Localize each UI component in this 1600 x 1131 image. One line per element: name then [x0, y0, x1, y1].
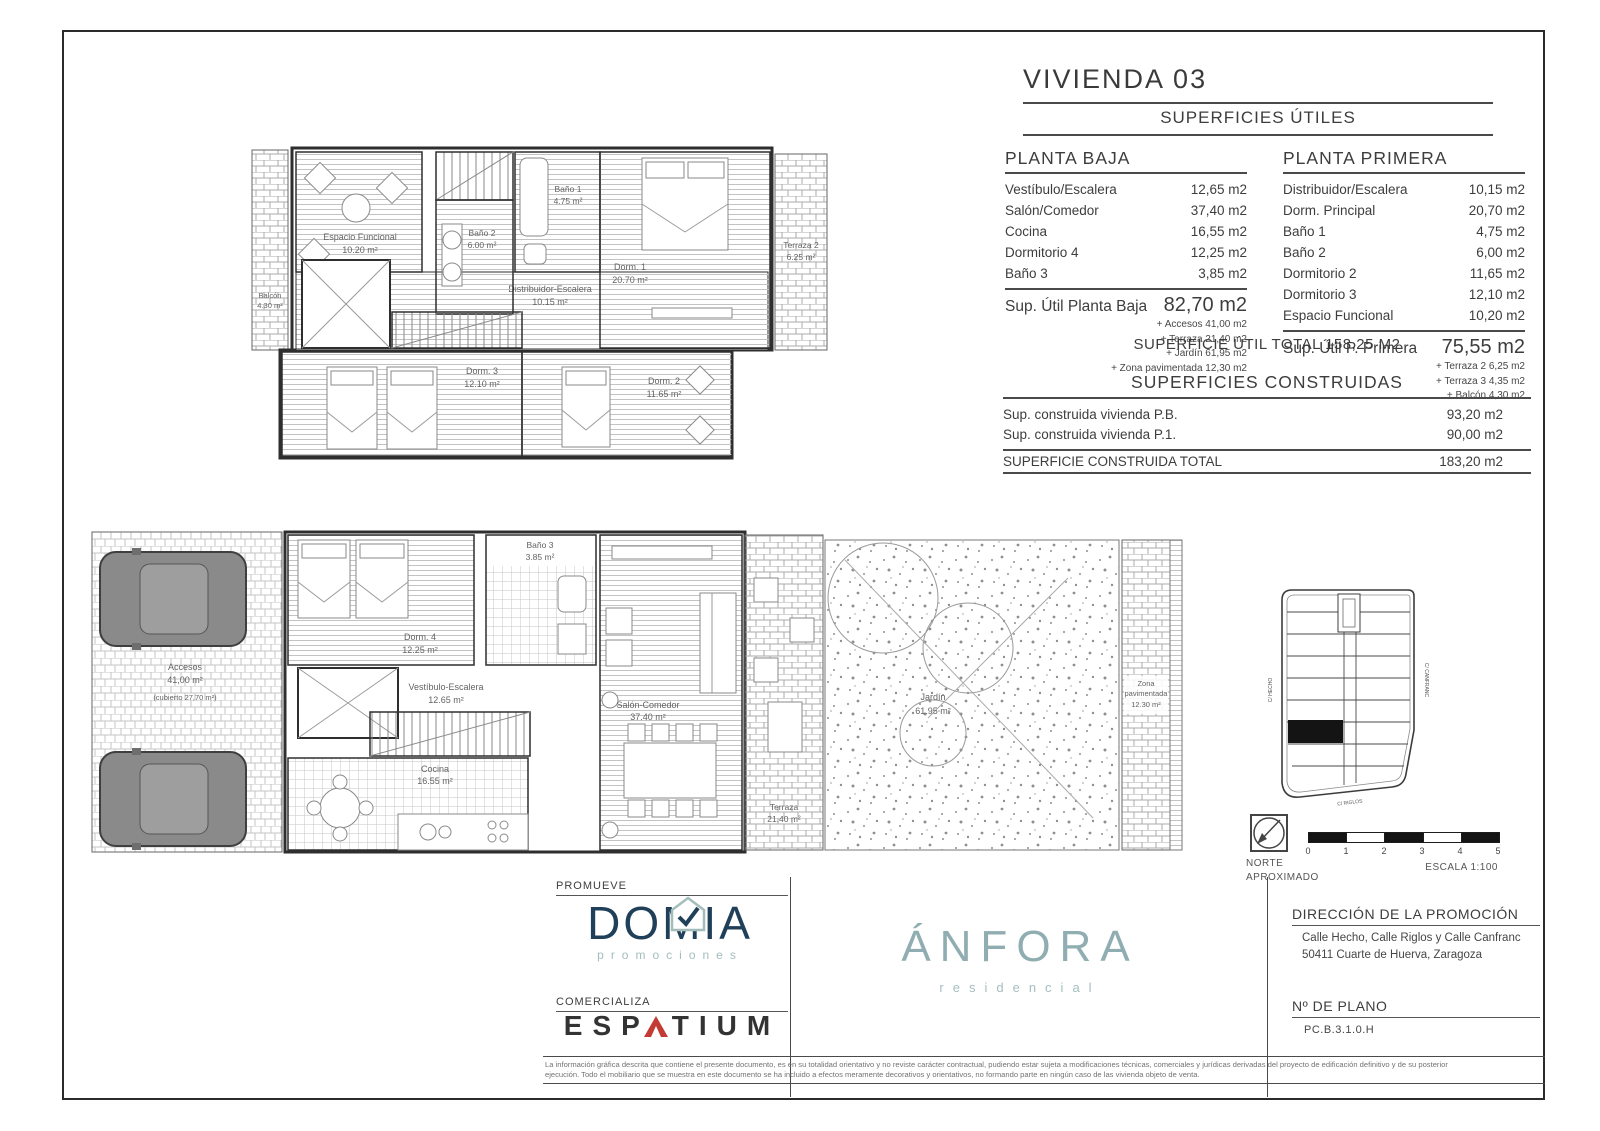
room-dorm4: Dorm. 4 12.25 m²	[288, 535, 474, 665]
room-espacio-funcional: Espacio Funcional 10.20 m²	[296, 152, 422, 272]
table-row: Vestíbulo/Escalera12,65 m2	[1005, 179, 1247, 200]
anfora-logo: ÁNFORA residencial	[860, 922, 1180, 995]
room-dorm3: Dorm. 3 12.10 m²	[282, 352, 522, 456]
total-value: 82,70 m2	[1164, 294, 1247, 317]
domia-logo: DOMIA promociones	[550, 898, 790, 962]
superficies-utiles-heading: SUPERFICIES ÚTILES	[1023, 108, 1493, 136]
room-area: 61.95 m²	[915, 706, 951, 716]
row-value: 4,75 m2	[1476, 221, 1525, 242]
table-row: Espacio Funcional10,20 m2	[1283, 305, 1525, 326]
espatium-text-right: TIUM	[672, 1012, 780, 1040]
table-row: Dormitorio 412,25 m2	[1005, 242, 1247, 263]
planta-primera-heading: PLANTA PRIMERA	[1283, 148, 1525, 174]
row-label: Sup. construida vivienda P.1.	[1003, 425, 1176, 445]
direccion-line1: Calle Hecho, Calle Riglos y Calle Canfra…	[1302, 932, 1542, 944]
room-bano3: Baño 3 3.85 m²	[486, 535, 596, 665]
row-value: 3,85 m2	[1198, 263, 1247, 284]
scale-tick: 4	[1455, 846, 1465, 856]
row-label: Dormitorio 3	[1283, 284, 1357, 305]
table-row: Baño 14,75 m2	[1283, 221, 1525, 242]
room-label: Baño 2	[469, 228, 496, 238]
row-label: Baño 2	[1283, 242, 1326, 263]
scale-tick: 2	[1379, 846, 1389, 856]
room-label: Baño 1	[555, 184, 582, 194]
direccion-line2: 50411 Cuarte de Huerva, Zaragoza	[1302, 949, 1542, 961]
balcony-area: Balcón 4.30 m²	[252, 150, 288, 350]
row-label: Sup. construida vivienda P.B.	[1003, 405, 1178, 425]
extra-area-line: + Accesos 41,00 m2	[1005, 318, 1247, 332]
scale-tick: 1	[1341, 846, 1351, 856]
table-row: Distribuidor/Escalera10,15 m2	[1283, 179, 1525, 200]
plano-heading: Nº DE PLANO	[1292, 998, 1540, 1018]
room-label: Baño 3	[527, 540, 554, 550]
void-skylight	[302, 260, 390, 348]
planta-baja-drawing: Accesos 41,00 m² (cubierto 27,70 m²) Dor…	[88, 518, 1188, 866]
car-icon	[100, 748, 246, 850]
anfora-subtitle: residencial	[860, 980, 1180, 995]
total-label: SUPERFICIE CONSTRUIDA TOTAL	[1003, 454, 1222, 469]
room-label: Dorm. 3	[466, 366, 498, 376]
driveway-area: Accesos 41,00 m² (cubierto 27,70 m²)	[92, 532, 282, 852]
scale-segment	[1385, 833, 1422, 842]
scale-label: ESCALA 1:100	[1398, 862, 1498, 873]
room-label: Terraza	[770, 802, 799, 812]
street-label: C/ CANFRANC	[1423, 663, 1429, 698]
table-row: Sup. construida vivienda P.B.93,20 m2	[1003, 405, 1531, 425]
room-area: 4.30 m²	[257, 301, 283, 310]
room-label: Dorm. 4	[404, 632, 436, 642]
scale-segment	[1309, 833, 1346, 842]
room-salon: Salón-Comedor 37.40 m²	[600, 535, 742, 850]
disclaimer-line2: ejecución. Todo el mobiliario que se mue…	[545, 1070, 1543, 1080]
room-area: 10.20 m²	[342, 245, 378, 255]
jardin-area: Jardín 61.95 m²	[825, 540, 1119, 850]
row-value: 10,20 m2	[1469, 305, 1525, 326]
row-value: 6,00 m2	[1476, 242, 1525, 263]
room-area: 4.75 m²	[554, 196, 583, 206]
room-bano2: Baño 2 6.00 m²	[436, 200, 513, 314]
room-area: 6.25 m²	[787, 252, 816, 262]
superficies-construidas-table: SUPERFICIES CONSTRUIDAS Sup. construida …	[1003, 372, 1531, 474]
boundary-wall	[1170, 540, 1182, 850]
row-value: 10,15 m2	[1469, 179, 1525, 200]
room-area: 12.10 m²	[464, 379, 500, 389]
planta-baja-total-row: Sup. Útil Planta Baja82,70 m2	[1005, 288, 1247, 317]
direccion-heading: DIRECCIÓN DE LA PROMOCIÓN	[1292, 906, 1540, 926]
total-label: Sup. Útil Planta Baja	[1005, 298, 1147, 316]
row-label: Espacio Funcional	[1283, 305, 1393, 326]
room-area: 6.00 m²	[468, 240, 497, 250]
room-area: 11.65 m²	[647, 389, 682, 399]
room-area: 12.30 m²	[1131, 700, 1161, 709]
terraza2-area: Terraza 2 6.25 m²	[775, 154, 827, 350]
room-bano1: Baño 1 4.75 m²	[515, 152, 600, 272]
room-area: 21.40 m²	[767, 814, 801, 824]
highlighted-unit	[1288, 720, 1343, 743]
planta-baja-heading: PLANTA BAJA	[1005, 148, 1247, 174]
row-label: Distribuidor/Escalera	[1283, 179, 1408, 200]
room-label: Dorm. 1	[614, 262, 646, 272]
row-label: Dorm. Principal	[1283, 200, 1375, 221]
room-area: 3.85 m²	[526, 552, 555, 562]
room-cocina: Cocina 16.55 m²	[288, 758, 528, 850]
stairs-upper	[436, 152, 513, 200]
room-label: Jardín	[920, 692, 945, 702]
row-label: Baño 3	[1005, 263, 1048, 284]
scale-segment	[1423, 833, 1462, 842]
street-label: C/ RIGLOS	[1337, 798, 1363, 807]
plano-number: PC.B.3.1.0.H	[1304, 1024, 1374, 1036]
room-label: Distribuidor-Escalera	[508, 284, 592, 294]
room-area: 16.55 m²	[417, 776, 453, 786]
street-label: C/ HECHO	[1268, 678, 1274, 703]
table-row: Cocina16,55 m2	[1005, 221, 1247, 242]
scale-tick: 5	[1493, 846, 1503, 856]
row-value: 12,65 m2	[1191, 179, 1247, 200]
site-plan-mini-map: C/ HECHO C/ CANFRANC C/ RIGLOS	[1262, 580, 1434, 808]
room-label: Terraza 2	[783, 240, 819, 250]
row-value: 90,00 m2	[1447, 425, 1503, 445]
disclaimer-line1: La información gráfica descrita que cont…	[545, 1060, 1543, 1070]
construidas-heading: SUPERFICIES CONSTRUIDAS	[1003, 372, 1531, 399]
plot-grid	[1287, 612, 1410, 785]
room-area: 37.40 m²	[630, 712, 666, 722]
room-label: Accesos	[168, 662, 203, 672]
room-area: 12.65 m²	[428, 695, 464, 705]
north-label-1: NORTE	[1246, 858, 1283, 869]
row-label: Dormitorio 4	[1005, 242, 1079, 263]
room-label: pavimentada	[1125, 689, 1169, 698]
table-row: Salón/Comedor37,40 m2	[1005, 200, 1247, 221]
room-label: Salón-Comedor	[616, 700, 679, 710]
room-area: 10.15 m²	[532, 297, 568, 307]
row-label: Salón/Comedor	[1005, 200, 1099, 221]
row-label: Vestíbulo/Escalera	[1005, 179, 1117, 200]
planta-primera-table: PLANTA PRIMERA Distribuidor/Escalera10,1…	[1283, 148, 1525, 403]
room-area: 20.70 m²	[612, 275, 648, 285]
espatium-text-left: ESP	[564, 1012, 650, 1040]
superficie-util-total: SUPERFICIE ÚTIL TOTAL 158,25 M2	[1003, 336, 1531, 353]
scale-segment	[1462, 833, 1499, 842]
page-title: VIVIENDA 03	[1023, 64, 1493, 104]
zona-pavimentada-area: Zona pavimentada 12.30 m²	[1122, 540, 1170, 850]
construida-total-row: SUPERFICIE CONSTRUIDA TOTAL183,20 m2	[1003, 449, 1531, 474]
row-value: 16,55 m2	[1191, 221, 1247, 242]
scale-tick: 0	[1303, 846, 1313, 856]
table-row: Sup. construida vivienda P.1.90,00 m2	[1003, 425, 1531, 445]
table-row: Dormitorio 312,10 m2	[1283, 284, 1525, 305]
north-label-2: APROXIMADO	[1246, 872, 1319, 883]
table-row: Dormitorio 211,65 m2	[1283, 263, 1525, 284]
room-label: Balcón	[259, 291, 282, 300]
room-label: Cocina	[421, 764, 449, 774]
table-row: Baño 26,00 m2	[1283, 242, 1525, 263]
north-compass-icon	[1246, 810, 1292, 856]
domia-house-icon	[670, 896, 706, 932]
room-note: (cubierto 27,70 m²)	[153, 693, 217, 702]
scale-segment	[1346, 833, 1385, 842]
row-label: Dormitorio 2	[1283, 263, 1357, 284]
row-value: 20,70 m2	[1469, 200, 1525, 221]
row-value: 12,25 m2	[1191, 242, 1247, 263]
row-value: 12,10 m2	[1469, 284, 1525, 305]
table-row: Dorm. Principal20,70 m2	[1283, 200, 1525, 221]
legal-disclaimer: La información gráfica descrita que cont…	[543, 1056, 1545, 1084]
room-dorm2: Dorm. 2 11.65 m²	[522, 352, 732, 456]
room-label: Zona	[1137, 679, 1155, 688]
row-label: Cocina	[1005, 221, 1047, 242]
terraza-area: Terraza 21.40 m²	[745, 535, 823, 850]
row-value: 37,40 m2	[1191, 200, 1247, 221]
espatium-a-triangle-icon	[644, 1016, 668, 1037]
room-label: Dorm. 2	[648, 376, 680, 386]
domia-wordmark: DOMIA	[550, 898, 790, 948]
room-label: Espacio Funcional	[323, 232, 397, 242]
row-value: 93,20 m2	[1447, 405, 1503, 425]
total-value: 183,20 m2	[1439, 454, 1503, 469]
espatium-logo: ESP TIUM	[550, 1012, 794, 1040]
room-area: 41,00 m²	[167, 675, 203, 685]
scale-bar	[1308, 832, 1500, 843]
scale-tick: 3	[1417, 846, 1427, 856]
car-icon	[100, 548, 246, 650]
table-row: Baño 33,85 m2	[1005, 263, 1247, 284]
promueve-label: PROMUEVE	[556, 880, 788, 896]
anfora-wordmark: ÁNFORA	[860, 922, 1180, 972]
room-area: 12.25 m²	[402, 645, 438, 655]
stairs-mid	[392, 312, 522, 348]
room-dorm1: Dorm. 1 20.70 m²	[600, 152, 770, 348]
domia-subtitle: promociones	[550, 948, 790, 962]
plan-sheet: Balcón 4.30 m² Terraza 3 4.35 m² Terraza…	[0, 0, 1600, 1131]
row-label: Baño 1	[1283, 221, 1326, 242]
row-value: 11,65 m2	[1470, 263, 1525, 284]
room-label: Vestíbulo-Escalera	[408, 682, 483, 692]
planta-primera-drawing: Balcón 4.30 m² Terraza 3 4.35 m² Terraza…	[232, 112, 852, 480]
